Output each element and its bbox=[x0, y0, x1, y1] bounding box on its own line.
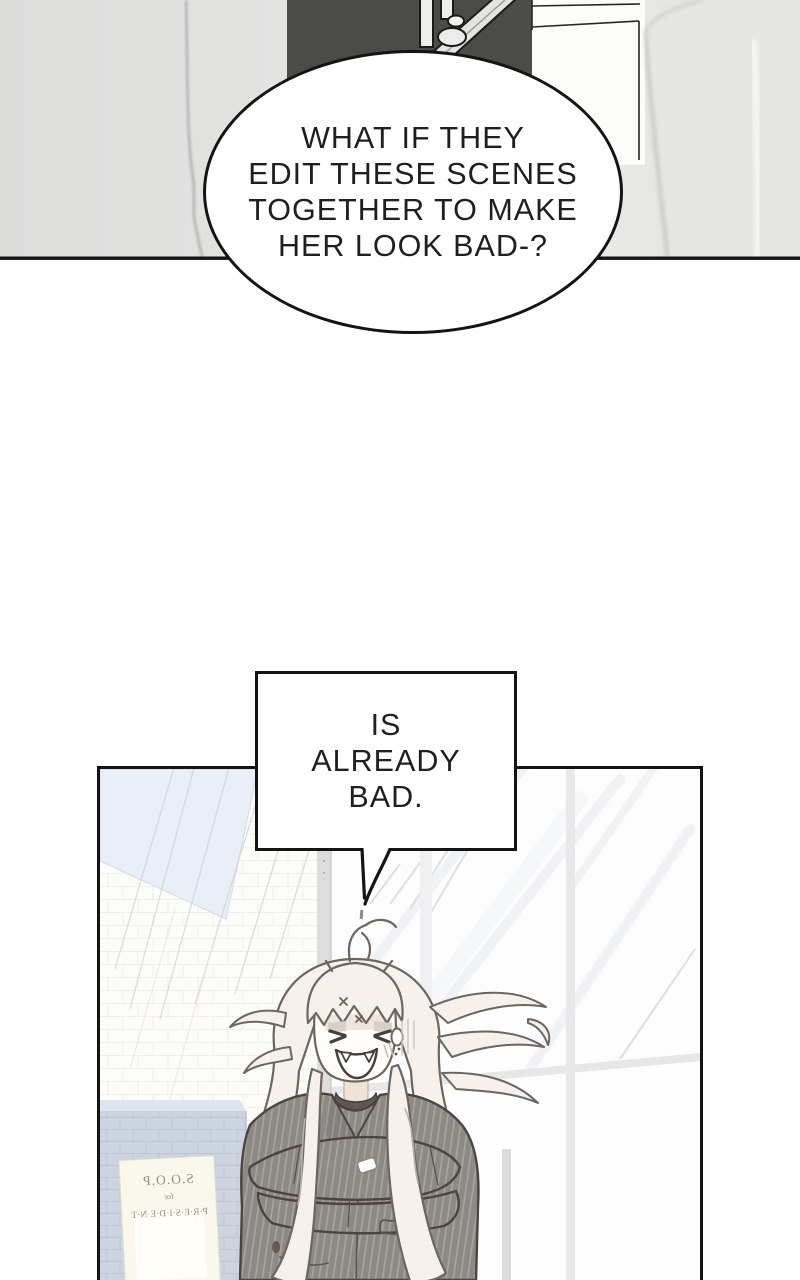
crossed-arms bbox=[249, 1137, 460, 1233]
earring bbox=[395, 1053, 398, 1056]
dialogue-line: HER LOOK BAD-? bbox=[278, 228, 548, 264]
poster-line-1: S.O.O.P bbox=[142, 1171, 194, 1189]
right-leg bbox=[645, 0, 800, 260]
speech-bubble-oval: WHAT IF THEY EDIT THESE SCENES TOGETHER … bbox=[203, 50, 623, 334]
poster: S.O.O.P for P·R·E·S·I·D·E·N·T bbox=[119, 1156, 220, 1280]
coat-button bbox=[272, 1241, 280, 1253]
dialogue-line: ALREADY bbox=[311, 743, 460, 779]
dialogue-line: BAD. bbox=[348, 779, 423, 815]
dialogue-line: IS bbox=[371, 707, 402, 743]
window-jamb-lower bbox=[502, 1149, 511, 1280]
speech-bubble-rect: IS ALREADY BAD. bbox=[255, 671, 517, 851]
window-mullion-vertical bbox=[566, 769, 575, 1280]
comic-page: WHAT IF THEY EDIT THESE SCENES TOGETHER … bbox=[0, 0, 800, 1280]
ear bbox=[392, 1029, 403, 1046]
face bbox=[307, 963, 402, 1082]
speech-bubble-tail bbox=[357, 848, 401, 912]
earring bbox=[398, 1048, 401, 1051]
dialogue-line: TOGETHER TO MAKE bbox=[248, 192, 578, 228]
dialogue-line: WHAT IF THEY bbox=[301, 120, 525, 156]
poster-line-2: for bbox=[164, 1192, 174, 1201]
dialogue-line: EDIT THESE SCENES bbox=[248, 156, 577, 192]
